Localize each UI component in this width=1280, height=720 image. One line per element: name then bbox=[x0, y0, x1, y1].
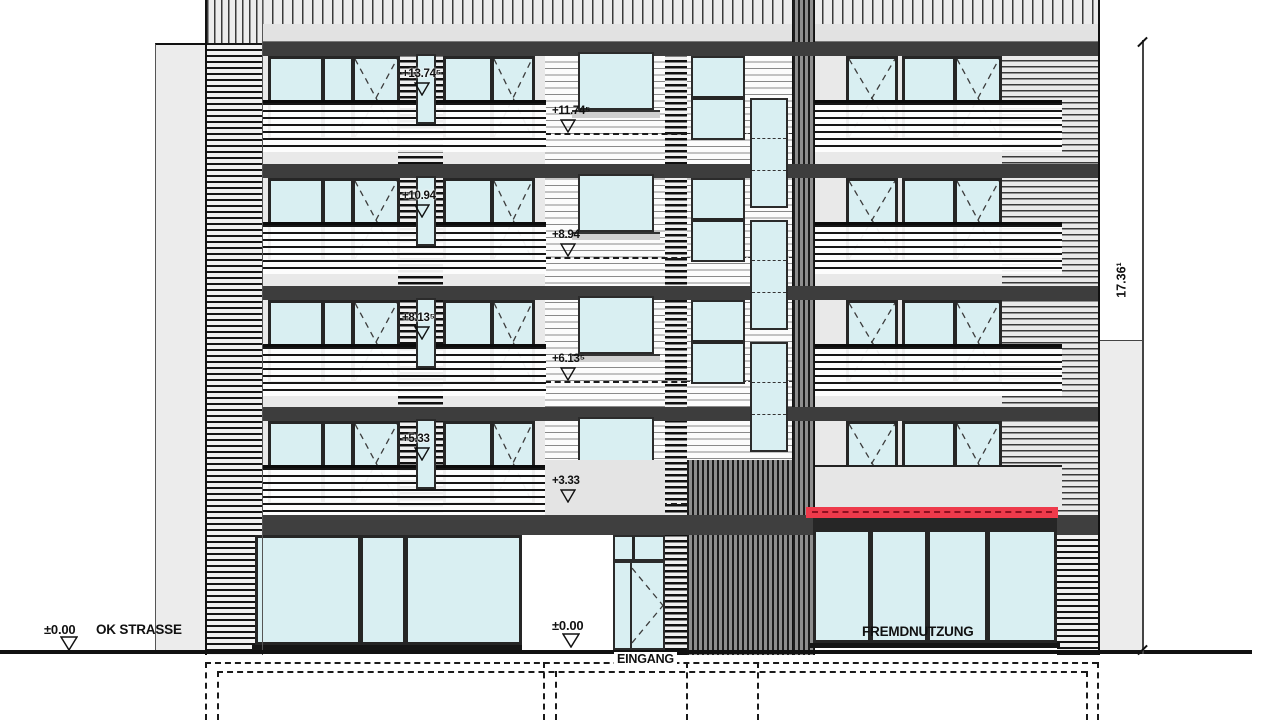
level-marker-icon bbox=[560, 243, 576, 257]
level-value: +8.13⁵ bbox=[402, 312, 435, 324]
street-level-label: OK STRASSE bbox=[96, 622, 182, 637]
elevation-drawing: FREMDNUTZUNG +11.74⁵ +8.94 +6.13⁵ +3.33 … bbox=[0, 0, 1280, 720]
window-sill bbox=[572, 232, 660, 240]
balcony-railing bbox=[262, 100, 546, 152]
level-line bbox=[545, 257, 687, 259]
window bbox=[691, 56, 745, 140]
basement-wall-line bbox=[555, 671, 557, 720]
slab-band bbox=[262, 42, 1100, 56]
entrance-transom bbox=[613, 535, 665, 561]
stair-window bbox=[750, 220, 788, 330]
entrance-door bbox=[630, 561, 665, 650]
balcony-railing bbox=[815, 222, 1062, 274]
commercial-use-label: FREMDNUTZUNG bbox=[862, 624, 974, 639]
street-level-value: ±0.00 bbox=[44, 622, 75, 637]
entrance-level-value: ±0.00 bbox=[552, 618, 583, 633]
slab-band bbox=[262, 407, 1100, 421]
window bbox=[691, 300, 745, 384]
stair-window bbox=[750, 342, 788, 452]
balcony-railing bbox=[262, 465, 546, 517]
balcony-railing bbox=[262, 344, 546, 396]
basement-wall-line bbox=[686, 662, 688, 720]
stair-zone-lower-louvers bbox=[687, 460, 792, 655]
neighbor-strip-right bbox=[1100, 340, 1143, 652]
level-marker-icon bbox=[414, 326, 430, 340]
storefront-left bbox=[255, 535, 522, 645]
slab-band bbox=[262, 286, 1100, 300]
window bbox=[578, 296, 654, 354]
entrance-label: EINGANG bbox=[614, 652, 677, 666]
dimension-extension-line bbox=[1142, 40, 1144, 654]
slab-band bbox=[262, 164, 1100, 178]
level-value: +5.33 bbox=[402, 433, 430, 445]
basement-outline bbox=[1097, 662, 1099, 720]
awning-band bbox=[806, 507, 1058, 518]
level-marker-icon bbox=[560, 489, 576, 503]
total-height-value: 17.36¹ bbox=[1115, 262, 1129, 297]
basement-outline bbox=[217, 671, 1087, 673]
level-value: +11.74⁵ bbox=[552, 105, 590, 117]
left-wall-top-siding bbox=[205, 0, 262, 43]
building-seam bbox=[262, 0, 263, 655]
level-marker-icon bbox=[560, 119, 576, 133]
window bbox=[578, 174, 654, 232]
neighbor-strip-left bbox=[155, 43, 205, 652]
dark-cladding-strip bbox=[792, 0, 815, 655]
left-wall-hatch bbox=[205, 43, 262, 655]
building-right-edge bbox=[1098, 0, 1100, 655]
level-value: +8.94 bbox=[552, 229, 580, 241]
level-line bbox=[545, 381, 687, 383]
slab-band-middle bbox=[545, 460, 665, 515]
stair-window bbox=[750, 98, 788, 208]
level-value: +6.13⁵ bbox=[552, 353, 585, 365]
basement-outline bbox=[205, 662, 207, 720]
window bbox=[691, 178, 745, 262]
level-line bbox=[545, 133, 687, 135]
basement-wall-line bbox=[543, 662, 545, 720]
window bbox=[578, 52, 654, 110]
roof-siding-band bbox=[262, 0, 1100, 24]
roof-fascia-band bbox=[262, 24, 1100, 42]
level-marker-icon bbox=[414, 82, 430, 96]
level-marker-icon bbox=[60, 636, 78, 651]
balcony-slab-band bbox=[815, 465, 1062, 507]
level-marker-icon bbox=[414, 204, 430, 218]
basement-outline bbox=[217, 671, 219, 720]
basement-wall-line bbox=[757, 662, 759, 720]
level-value: +10.94 bbox=[402, 190, 436, 202]
balcony-railing bbox=[262, 222, 546, 274]
level-value: +13.74⁵ bbox=[402, 68, 441, 80]
level-value: +3.33 bbox=[552, 475, 580, 487]
right-wall-hatch-gf bbox=[1057, 515, 1100, 655]
balcony-railing bbox=[815, 344, 1062, 396]
storefront-right-sill bbox=[810, 643, 1060, 648]
basement-outline bbox=[1086, 671, 1088, 720]
balcony-railing bbox=[815, 100, 1062, 152]
total-height-dimension: 17.36¹ bbox=[1104, 235, 1140, 325]
level-marker-icon bbox=[562, 633, 580, 648]
level-marker-icon bbox=[414, 447, 430, 461]
level-marker-icon bbox=[560, 367, 576, 381]
window-sill bbox=[572, 354, 660, 362]
